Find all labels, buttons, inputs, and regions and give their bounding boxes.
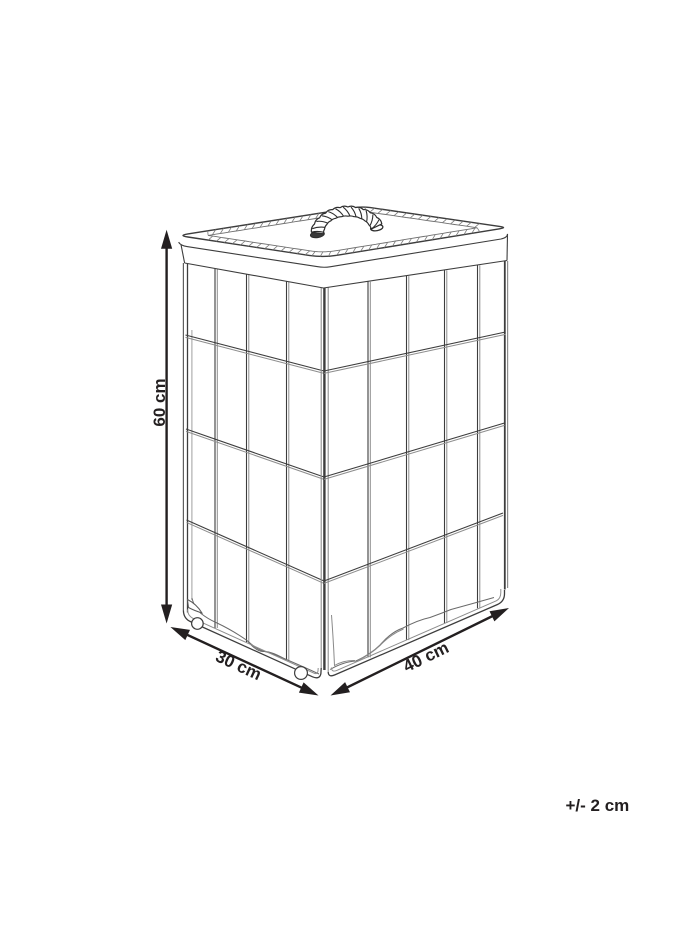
svg-text:+/- 2 cm: +/- 2 cm (566, 796, 630, 815)
svg-text:60 cm: 60 cm (150, 378, 169, 426)
